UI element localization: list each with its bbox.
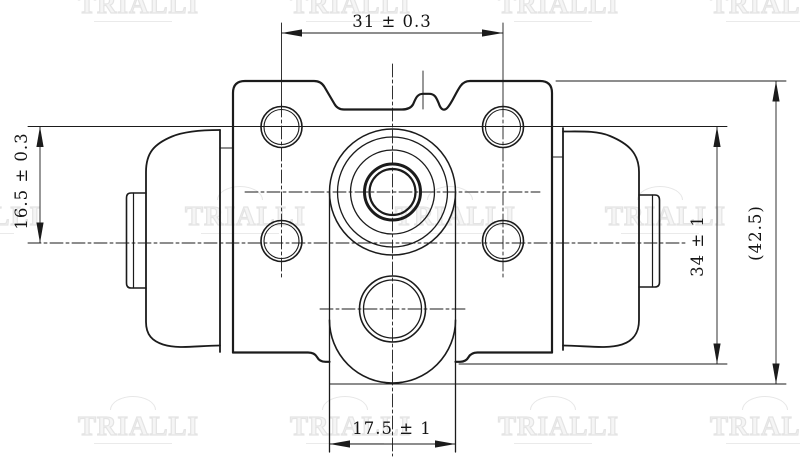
- dimension-arrows: [36, 29, 779, 447]
- arrow-icon: [435, 440, 456, 447]
- dust-boot-left: [146, 130, 220, 347]
- arrow-icon: [713, 344, 720, 365]
- dim-label-overall-height: (42.5): [746, 205, 765, 261]
- dim-label-right-height: 34 ± 1: [688, 215, 707, 277]
- arrow-icon: [36, 223, 43, 244]
- arrow-icon: [772, 81, 779, 102]
- arrow-icon: [330, 440, 351, 447]
- piston-cap-left: [127, 193, 147, 288]
- wheel-cylinder-drawing: 31 ± 0.3 16.5 ± 0.3 34 ± 1 (42.5) 17.5 ±…: [0, 0, 800, 468]
- plate-bottom-edge-right: [456, 353, 553, 362]
- dim-label-bottom-width: 17.5 ± 1: [352, 419, 432, 438]
- arrow-icon: [772, 364, 779, 385]
- arrow-icon: [482, 29, 503, 36]
- dim-label-top-width: 31 ± 0.3: [352, 12, 432, 31]
- arrow-icon: [713, 127, 720, 148]
- technical-drawing-canvas: TRIALLI TRIALLI TRIALLI TRIALLI TRIALLI …: [0, 0, 800, 468]
- plate-bottom-edge-left: [233, 353, 330, 362]
- dim-label-left-offset: 16.5 ± 0.3: [12, 132, 31, 229]
- arrow-icon: [282, 29, 303, 36]
- dust-boot-right: [563, 131, 639, 347]
- piston-cap-right: [639, 195, 660, 287]
- arrow-icon: [36, 127, 43, 148]
